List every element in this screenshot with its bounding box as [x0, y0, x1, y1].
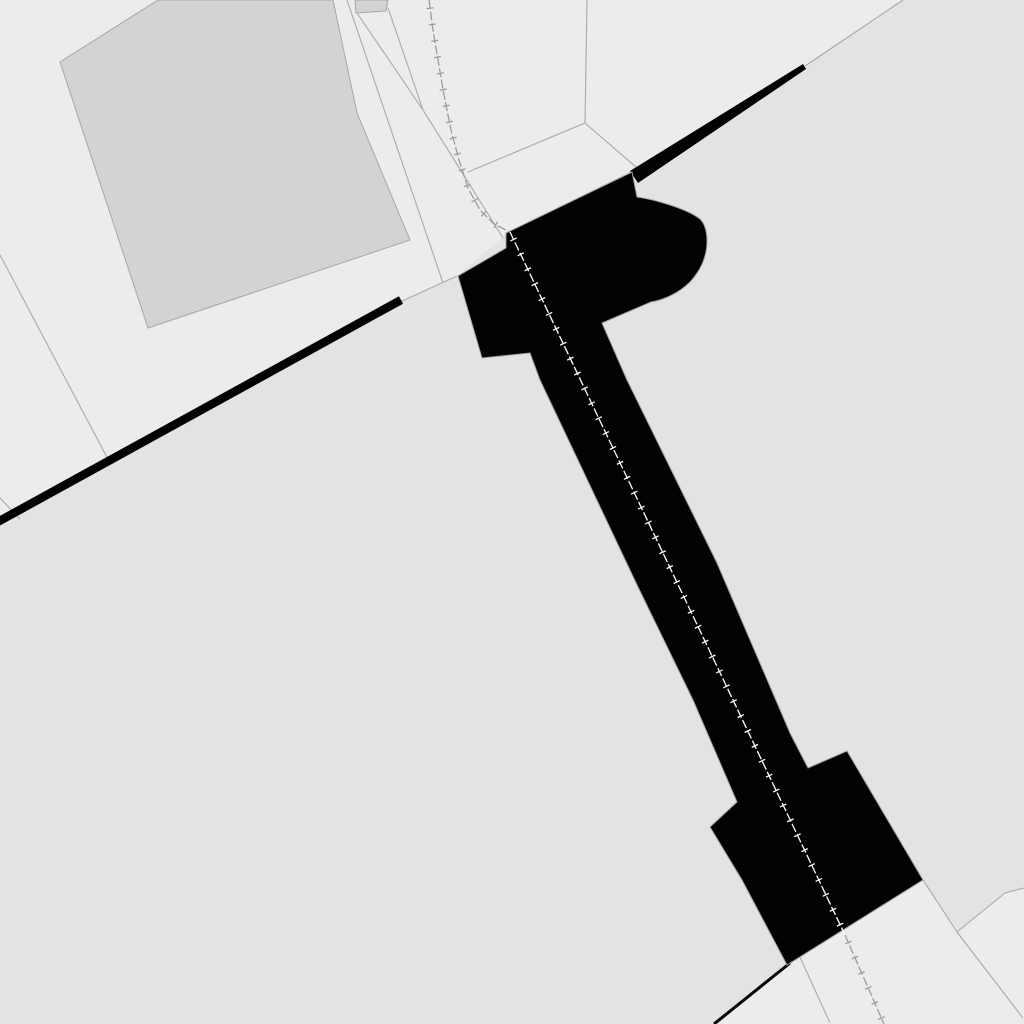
railway-segment-north-tick — [429, 24, 436, 25]
railway-segment-north-tick — [427, 8, 434, 9]
cadastral-map-canvas — [0, 0, 1024, 1024]
map-viewport — [0, 0, 1024, 1024]
building-small-clipped — [355, 0, 388, 13]
